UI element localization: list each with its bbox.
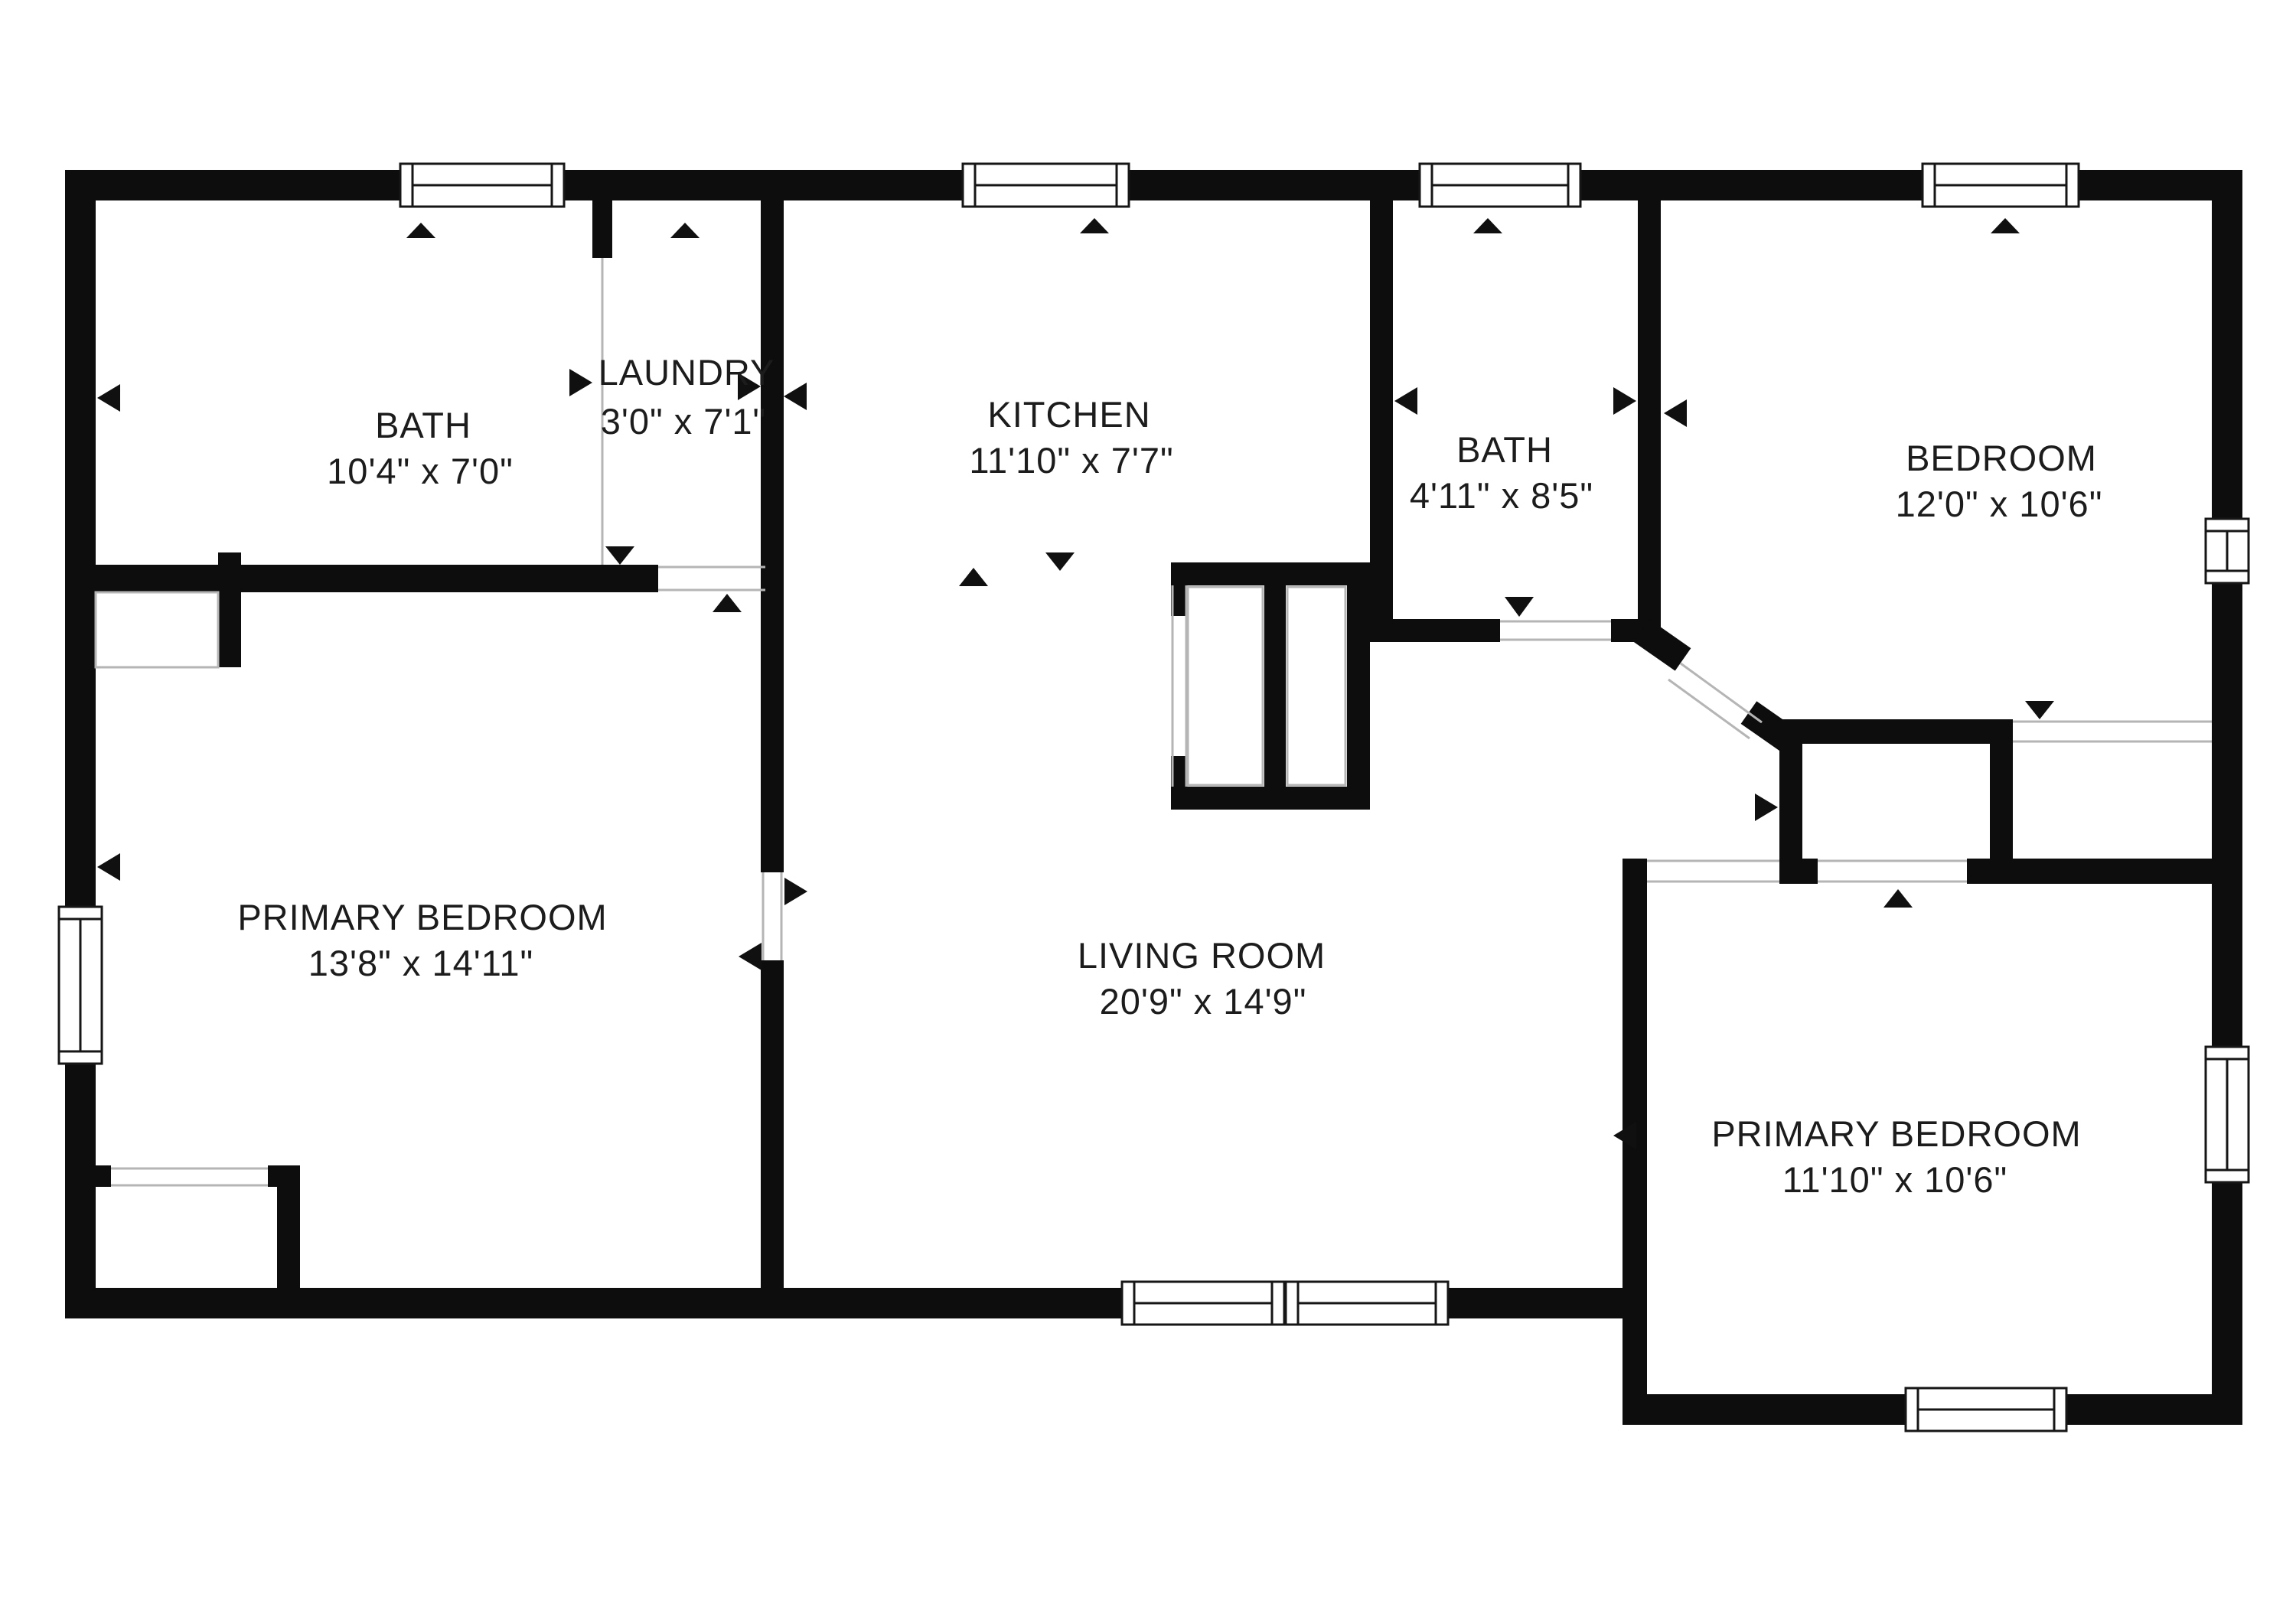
window-symbol: [963, 164, 1129, 207]
opening-pantry-cell-a: [1188, 587, 1263, 785]
window-symbol: [2206, 519, 2249, 583]
wall-kitchen-left: [761, 200, 784, 592]
door-marker-up-icon: [1991, 218, 2020, 233]
wall-bath2-left: [1370, 200, 1393, 619]
door-marker-right-icon: [1755, 794, 1778, 821]
door-marker-down-icon: [1045, 552, 1075, 571]
room-label-bath-middle: BATH 4'11" x 8'5": [1410, 429, 1593, 516]
wall-bath2-right: [1638, 170, 1661, 629]
wall-bath2-bottom-a: [1370, 619, 1500, 642]
door-marker-up-icon: [1473, 218, 1502, 233]
room-name: BEDROOM: [1906, 438, 2097, 478]
room-label-kitchen: KITCHEN 11'10" x 7'7": [969, 394, 1173, 481]
opening-nook: [96, 592, 218, 667]
door-marker-left-icon: [97, 384, 120, 412]
window-symbol: [1923, 164, 2079, 207]
room-name: LAUNDRY: [598, 352, 775, 393]
wall-lcloset-jamb-l: [96, 1165, 111, 1187]
room-dimensions: 3'0" x 7'1": [601, 401, 767, 442]
room-name: PRIMARY BEDROOM: [237, 897, 607, 937]
door-marker-left-icon: [784, 383, 807, 410]
wall-closet-jamb: [1779, 859, 1818, 884]
door-marker-up-icon: [959, 568, 988, 586]
door-marker-left-icon: [739, 943, 762, 970]
room-label-laundry: LAUNDRY 3'0" x 7'1": [598, 352, 775, 442]
wall-closet-right: [1990, 744, 2013, 859]
window-symbol: [2206, 1047, 2249, 1182]
room-label-primary-bedroom-left: PRIMARY BEDROOM 13'8" x 14'11": [237, 897, 607, 983]
room-dimensions: 4'11" x 8'5": [1410, 475, 1593, 516]
door-marker-left-icon: [1394, 387, 1417, 415]
wall-exterior-left: [65, 170, 96, 1318]
room-dimensions: 11'10" x 7'7": [969, 440, 1173, 481]
room-label-living-room: LIVING ROOM 20'9" x 14'9": [1078, 935, 1326, 1022]
room-dimensions: 11'10" x 10'6": [1782, 1159, 2007, 1200]
opening-diagonal-a: [1681, 663, 1762, 722]
wall-bath1-bottom-a: [96, 565, 658, 592]
door-marker-up-icon: [713, 594, 742, 612]
floor-plan: BATH 10'4" x 7'0" LAUNDRY 3'0" x 7'1" KI…: [0, 0, 2296, 1610]
room-label-bath-upper: BATH 10'4" x 7'0": [327, 405, 514, 491]
door-marker-left-icon: [1664, 399, 1687, 427]
wall-pbr-right-lower: [761, 960, 784, 1288]
door-marker-right-icon: [569, 369, 592, 396]
wall-pantry-top: [1171, 562, 1370, 585]
room-dimensions: 12'0" x 10'6": [1896, 484, 2103, 524]
room-label-primary-bedroom-right: PRIMARY BEDROOM 11'10" x 10'6": [1711, 1113, 2081, 1200]
wall-pantry-mid: [1264, 585, 1286, 787]
door-marker-up-icon: [670, 223, 700, 238]
window-symbol: [1906, 1388, 2066, 1431]
door-marker-down-icon: [2025, 701, 2054, 719]
wall-nook-stub: [218, 552, 241, 667]
room-name: KITCHEN: [987, 394, 1150, 435]
opening-pantry-cell-b: [1287, 587, 1345, 785]
wall-laundry-stub: [592, 200, 612, 258]
wall-bedcloset-bottom: [1967, 859, 2212, 884]
window-symbol: [1420, 164, 1580, 207]
windows: [59, 164, 2249, 1431]
door-marker-right-icon: [784, 878, 807, 905]
window-symbol: [59, 907, 102, 1064]
room-dimensions: 13'8" x 14'11": [308, 943, 533, 983]
door-marker-left-icon: [97, 853, 120, 881]
room-name: BATH: [375, 405, 471, 445]
room-labels: BATH 10'4" x 7'0" LAUNDRY 3'0" x 7'1" KI…: [237, 352, 2102, 1200]
wall-closet-left: [1779, 744, 1802, 859]
room-name: PRIMARY BEDROOM: [1711, 1113, 2081, 1154]
wall-exterior-top: [65, 170, 2242, 200]
floor-plan-page: BATH 10'4" x 7'0" LAUNDRY 3'0" x 7'1" KI…: [0, 0, 2296, 1610]
door-marker-down-icon: [1505, 597, 1534, 617]
window-symbol: [400, 164, 564, 207]
window-symbol: [1122, 1282, 1284, 1325]
wall-closet-top: [1779, 719, 2013, 744]
door-markers: [97, 218, 2054, 1149]
wall-exterior-right: [2212, 170, 2242, 1425]
walls: [65, 170, 2242, 1425]
wall-pantry-bottom: [1171, 787, 1370, 810]
wall-lcloset-right: [277, 1165, 300, 1288]
opening-diagonal-b: [1668, 680, 1750, 738]
room-name: BATH: [1456, 429, 1553, 470]
window-symbol: [1286, 1282, 1448, 1325]
room-dimensions: 10'4" x 7'0": [327, 451, 514, 491]
wall-pantry-right: [1347, 562, 1370, 810]
wall-pbr-right-upper: [761, 565, 784, 872]
door-marker-right-icon: [1613, 387, 1636, 415]
door-marker-down-icon: [605, 546, 634, 565]
door-marker-up-icon: [1080, 218, 1109, 233]
door-marker-up-icon: [1883, 889, 1913, 908]
room-dimensions: 20'9" x 14'9": [1100, 981, 1307, 1022]
room-name: LIVING ROOM: [1078, 935, 1326, 976]
door-marker-up-icon: [406, 223, 435, 238]
room-label-bedroom: BEDROOM 12'0" x 10'6": [1896, 438, 2103, 524]
